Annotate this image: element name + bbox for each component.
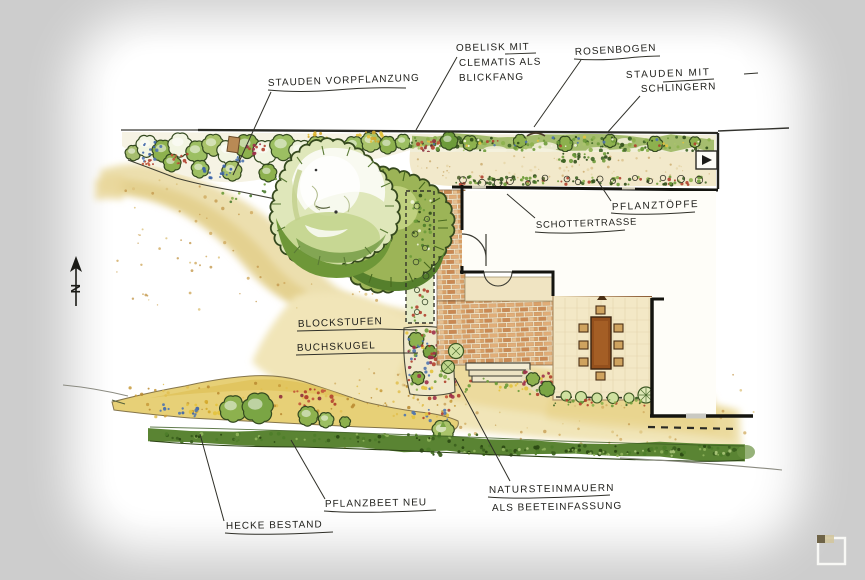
svg-text:STAUDEN VORPFLANZUNG: STAUDEN VORPFLANZUNG bbox=[268, 73, 420, 89]
svg-text:BLICKFANG: BLICKFANG bbox=[459, 72, 524, 84]
svg-text:NATURSTEINMAUERN: NATURSTEINMAUERN bbox=[489, 483, 615, 496]
svg-text:ALS BEETEINFASSUNG: ALS BEETEINFASSUNG bbox=[492, 501, 622, 514]
svg-text:OBELISK MIT: OBELISK MIT bbox=[456, 42, 530, 54]
svg-text:HECKE BESTAND: HECKE BESTAND bbox=[226, 519, 323, 532]
svg-text:STAUDEN MIT: STAUDEN MIT bbox=[626, 67, 711, 81]
svg-text:CLEMATIS ALS: CLEMATIS ALS bbox=[459, 57, 542, 69]
svg-text:ROSENBOGEN: ROSENBOGEN bbox=[575, 43, 657, 58]
svg-text:N: N bbox=[68, 284, 83, 293]
svg-text:PFLANZBEET NEU: PFLANZBEET NEU bbox=[325, 497, 427, 510]
svg-text:SCHLINGERN: SCHLINGERN bbox=[641, 81, 717, 95]
